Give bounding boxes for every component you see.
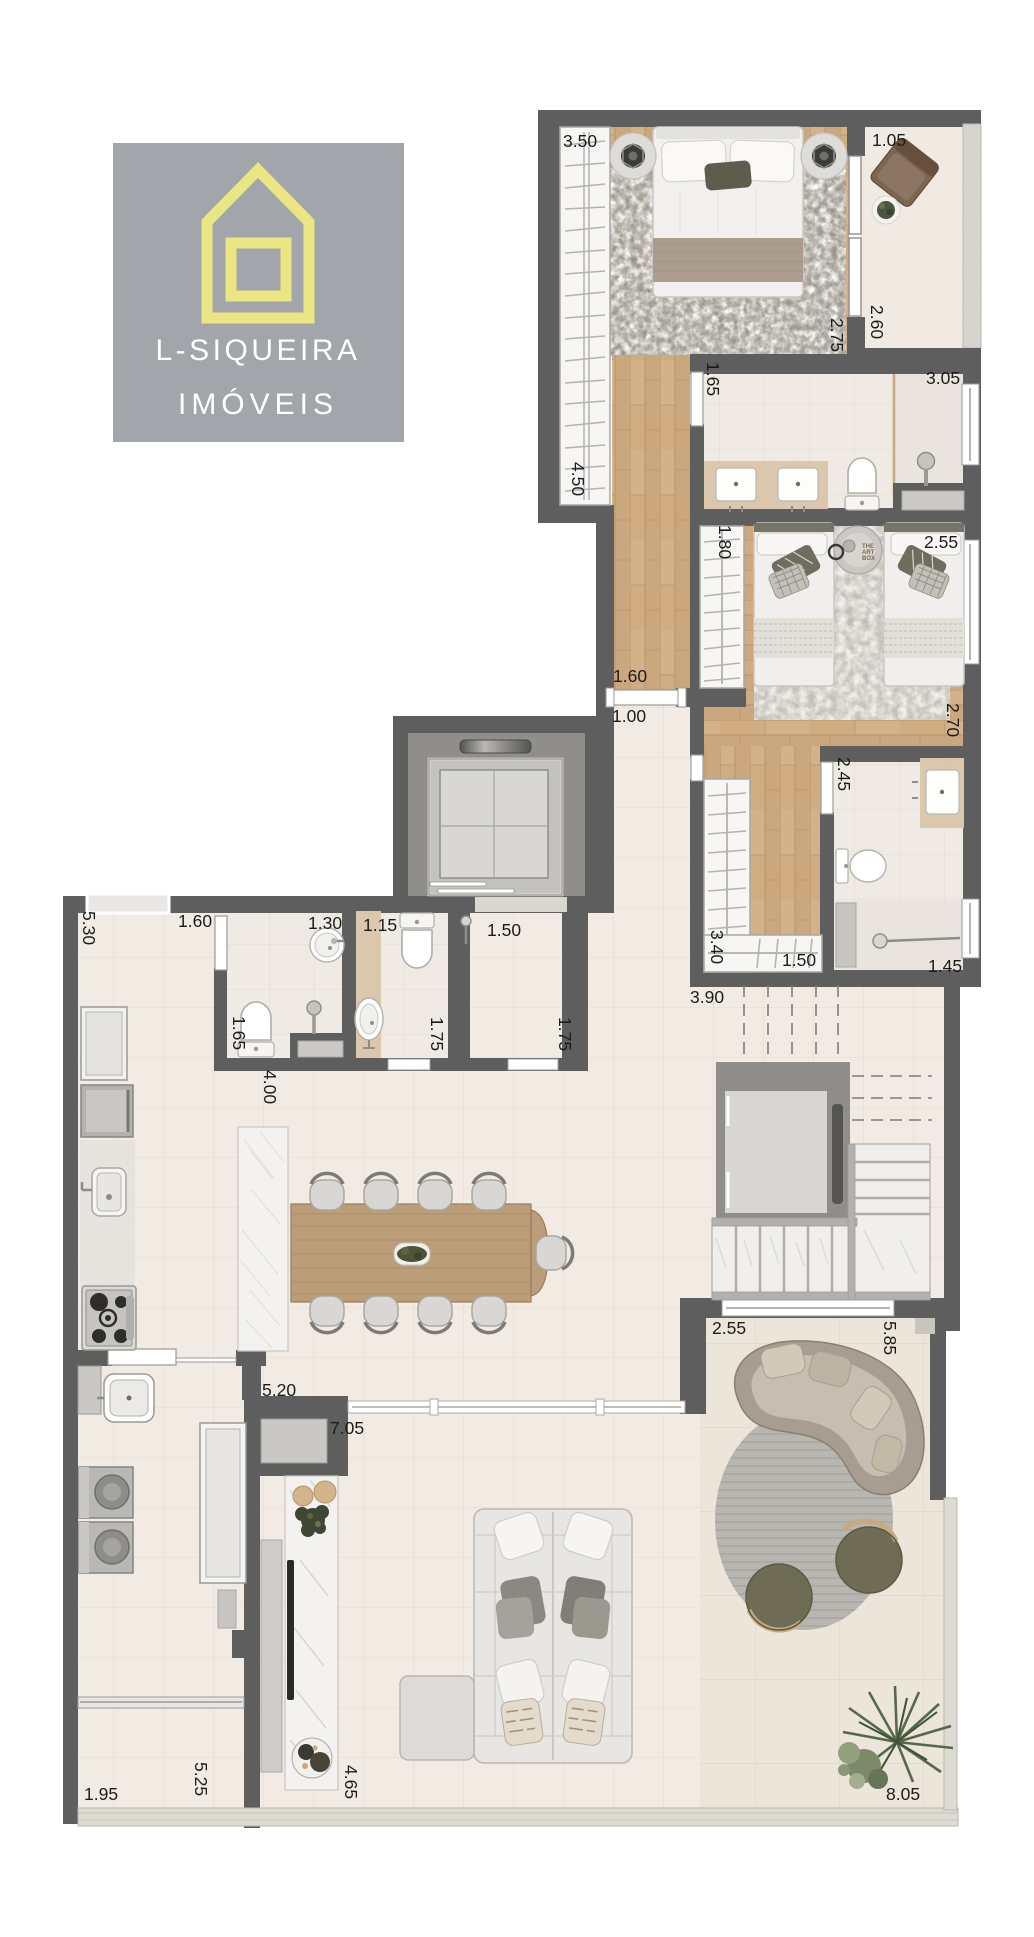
svg-text:5.25: 5.25 bbox=[191, 1762, 211, 1796]
svg-text:1.95: 1.95 bbox=[84, 1784, 118, 1804]
svg-text:1.00: 1.00 bbox=[612, 706, 646, 726]
svg-text:IMÓVEIS: IMÓVEIS bbox=[178, 388, 338, 421]
svg-text:2.55: 2.55 bbox=[712, 1318, 746, 1338]
svg-text:1.65: 1.65 bbox=[229, 1016, 249, 1050]
svg-text:2.60: 2.60 bbox=[867, 305, 887, 339]
svg-text:3.40: 3.40 bbox=[707, 930, 727, 964]
svg-text:L-SIQUEIRA: L-SIQUEIRA bbox=[155, 334, 360, 367]
svg-text:1.80: 1.80 bbox=[715, 525, 735, 559]
svg-text:1.60: 1.60 bbox=[613, 666, 647, 686]
svg-text:5.30: 5.30 bbox=[79, 911, 99, 945]
svg-text:1.05: 1.05 bbox=[872, 130, 906, 150]
svg-text:BOX: BOX bbox=[862, 556, 875, 562]
svg-text:5.20: 5.20 bbox=[262, 1380, 296, 1400]
svg-text:4.65: 4.65 bbox=[341, 1765, 361, 1799]
svg-text:4.00: 4.00 bbox=[260, 1070, 280, 1104]
svg-text:1.30: 1.30 bbox=[308, 913, 342, 933]
svg-text:2.70: 2.70 bbox=[943, 703, 963, 737]
svg-text:5.85: 5.85 bbox=[880, 1321, 900, 1355]
svg-text:1.15: 1.15 bbox=[363, 915, 397, 935]
svg-text:1.65: 1.65 bbox=[703, 362, 723, 396]
svg-text:3.05: 3.05 bbox=[926, 368, 960, 388]
svg-text:1.50: 1.50 bbox=[487, 920, 521, 940]
svg-text:1.75: 1.75 bbox=[427, 1017, 447, 1051]
svg-text:8.05: 8.05 bbox=[886, 1784, 920, 1804]
svg-text:4.50: 4.50 bbox=[568, 462, 588, 496]
svg-text:2.45: 2.45 bbox=[834, 757, 854, 791]
svg-text:7.05: 7.05 bbox=[330, 1418, 364, 1438]
svg-text:2.55: 2.55 bbox=[924, 532, 958, 552]
svg-text:1.75: 1.75 bbox=[555, 1017, 575, 1051]
svg-text:3.90: 3.90 bbox=[690, 987, 724, 1007]
svg-text:1.50: 1.50 bbox=[782, 950, 816, 970]
svg-text:2.75: 2.75 bbox=[827, 318, 847, 352]
svg-text:1.60: 1.60 bbox=[178, 911, 212, 931]
svg-text:3.50: 3.50 bbox=[563, 131, 597, 151]
svg-text:1.45: 1.45 bbox=[928, 956, 962, 976]
